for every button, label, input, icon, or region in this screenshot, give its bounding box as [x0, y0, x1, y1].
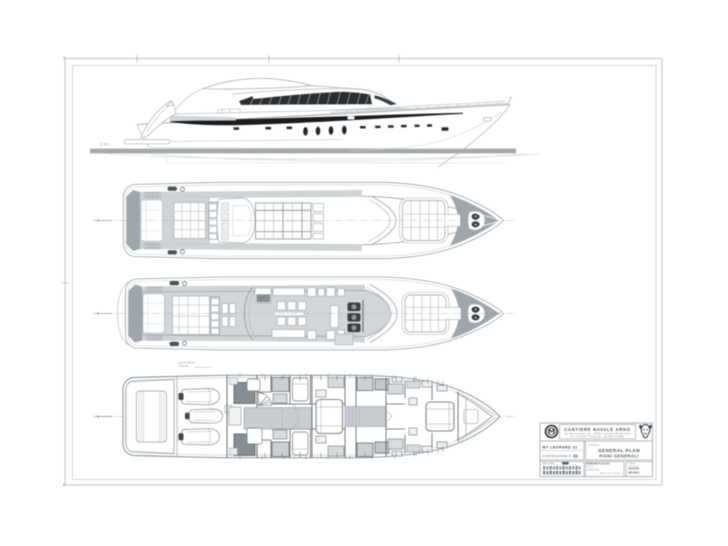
svg-text:GENERAL PLAN: GENERAL PLAN	[598, 448, 640, 453]
svg-text:MY LEOPARD 31: MY LEOPARD 31	[543, 446, 578, 450]
svg-text:030-0011: 030-0011	[628, 470, 640, 474]
svg-text:DATA 09.11: DATA 09.11	[588, 469, 601, 472]
svg-text:PONTE: PONTE	[179, 364, 189, 368]
svg-text:31: 31	[573, 454, 579, 459]
svg-text:COSTRUZIONE N: COSTRUZIONE N	[543, 454, 572, 458]
svg-text:REV. DATA: REV. DATA	[543, 462, 555, 465]
svg-text:tel +39 050 775211 fax +39 050: tel +39 050 775211 fax +39 050 775400	[571, 436, 625, 439]
svg-text:SCALA: SCALA	[628, 462, 636, 465]
svg-text:DISEGNO N 31-011: DISEGNO N 31-011	[587, 461, 611, 465]
svg-text:ARCHIVIO: ARCHIVIO	[628, 468, 639, 471]
svg-text:CANTIERE NAVALE ARNO: CANTIERE NAVALE ARNO	[564, 427, 630, 432]
svg-text:APPR. UFF. TECNICO: APPR. UFF. TECNICO	[600, 472, 622, 475]
svg-text:1:50 1:100: 1:50 1:100	[628, 466, 639, 468]
svg-text:G.M.L.: G.M.L.	[100, 143, 112, 147]
svg-text:REV. 0: REV. 0	[587, 466, 595, 468]
svg-text:PIANI GENERALI: PIANI GENERALI	[599, 454, 639, 459]
svg-text:TITOLO:: TITOLO:	[588, 443, 600, 447]
